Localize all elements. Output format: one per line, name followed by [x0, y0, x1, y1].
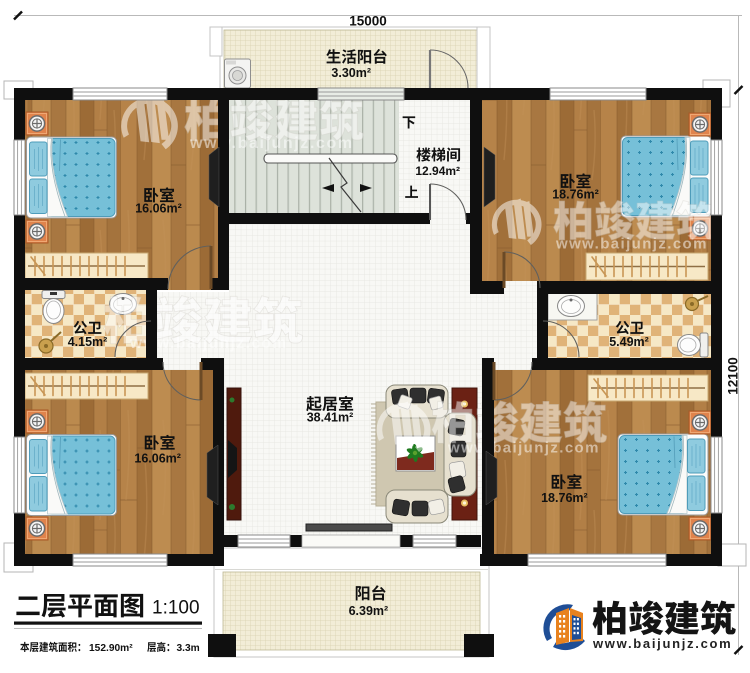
svg-text:www.baijunjz.com: www.baijunjz.com	[592, 636, 732, 651]
svg-text:38.41m²: 38.41m²	[307, 410, 354, 424]
svg-text:18.76m²: 18.76m²	[552, 187, 599, 201]
svg-text:www.baijunjz.com: www.baijunjz.com	[189, 135, 354, 152]
svg-text:6.39m²: 6.39m²	[349, 604, 389, 618]
svg-text:12.94m²: 12.94m²	[415, 164, 460, 178]
svg-text:15000: 15000	[349, 14, 387, 29]
svg-text:12100: 12100	[726, 357, 741, 395]
svg-text:4.15m²: 4.15m²	[68, 335, 108, 349]
svg-text:3.30m²: 3.30m²	[331, 66, 371, 80]
svg-text:1:100: 1:100	[152, 598, 200, 619]
svg-text:www.baijunjz.com: www.baijunjz.com	[555, 236, 708, 253]
svg-text:3.3m: 3.3m	[177, 643, 200, 654]
svg-text:www.baijunjz.com: www.baijunjz.com	[447, 440, 600, 457]
svg-text:5.49m²: 5.49m²	[609, 335, 649, 349]
svg-text:16.06m²: 16.06m²	[135, 201, 182, 215]
svg-text:18.76m²: 18.76m²	[541, 491, 588, 505]
svg-text:152.90m²: 152.90m²	[89, 643, 133, 654]
svg-text:16.06m²: 16.06m²	[134, 452, 181, 466]
